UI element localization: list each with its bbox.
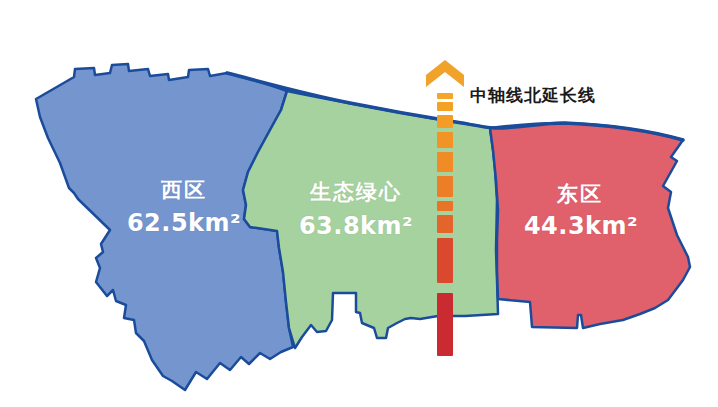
- region-west-area: 62.5km²: [127, 209, 241, 237]
- axis-label: 中轴线北延长线: [470, 84, 596, 107]
- axis-dash-segment: [437, 238, 453, 283]
- region-west-name: 西区: [161, 176, 207, 204]
- axis-dash-segment: [437, 215, 453, 233]
- map-canvas: 西区 62.5km² 生态绿心 63.8km² 东区 44.3km² 中轴线北延…: [0, 0, 718, 407]
- axis-dash-segment: [437, 201, 453, 211]
- axis-arrow-icon: [426, 60, 464, 87]
- region-east-name: 东区: [557, 180, 603, 208]
- axis-dash-segment: [437, 293, 453, 356]
- axis-dash-segment: [437, 132, 453, 148]
- axis-dash-segment: [437, 176, 453, 197]
- region-east-area: 44.3km²: [524, 212, 638, 240]
- axis-dash-segment: [437, 152, 453, 172]
- axis-dash-segment: [437, 102, 453, 111]
- axis-dash-segment: [437, 115, 453, 128]
- region-green-heart-name: 生态绿心: [310, 178, 402, 206]
- region-green-heart-area: 63.8km²: [299, 212, 413, 240]
- axis-dashed-line: [437, 93, 453, 356]
- axis-dash-segment: [437, 93, 453, 99]
